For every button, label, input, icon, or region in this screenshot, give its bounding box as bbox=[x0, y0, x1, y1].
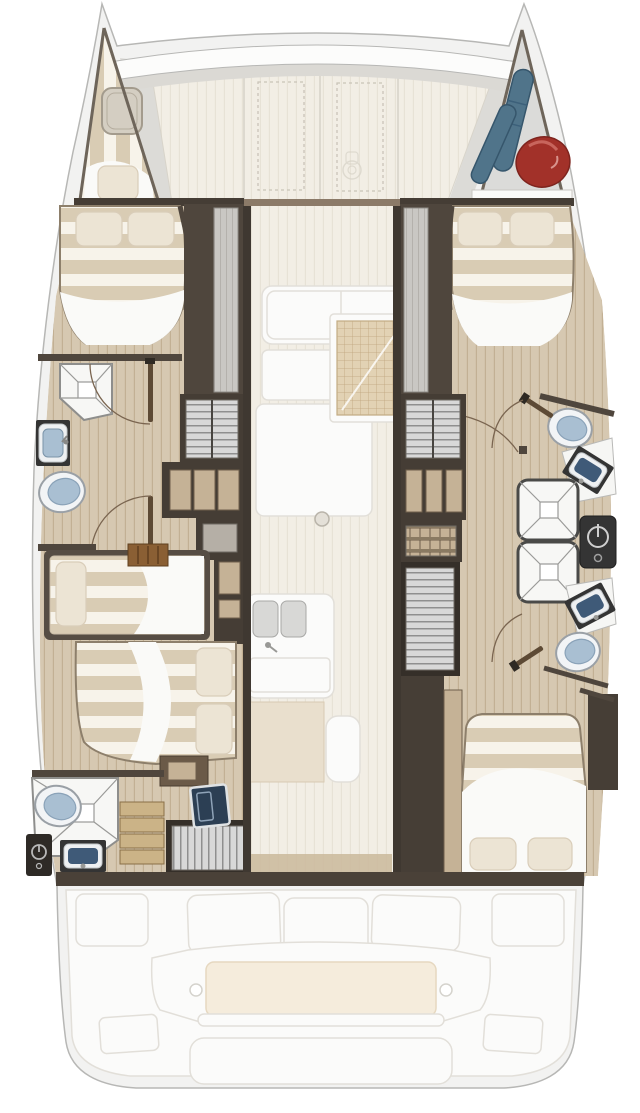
aft-closet bbox=[588, 694, 618, 790]
catamaran-floorplan-image bbox=[0, 0, 640, 1113]
support-post bbox=[315, 512, 329, 526]
pillow bbox=[128, 212, 174, 246]
saloon-bench-ghost bbox=[326, 716, 360, 782]
pillow bbox=[510, 212, 554, 246]
starboard-forward-cabin-bed bbox=[446, 206, 574, 346]
aft-bench bbox=[152, 942, 491, 1026]
foredeck-panels bbox=[150, 64, 498, 203]
cockpit-side-bench bbox=[492, 894, 564, 946]
galley-aft-counter-ghost bbox=[250, 854, 392, 874]
stern-bulkhead bbox=[56, 872, 584, 886]
pillow bbox=[528, 838, 572, 870]
hatch-navy bbox=[190, 784, 230, 828]
aft-bench-cushion bbox=[206, 962, 436, 1016]
pillow bbox=[76, 212, 122, 246]
starboard-cubby-shelves bbox=[400, 462, 466, 520]
swim-platform bbox=[190, 1038, 452, 1084]
pillow bbox=[196, 648, 232, 696]
pillow bbox=[196, 704, 232, 754]
port-cubby-shelves bbox=[162, 462, 244, 518]
water-heater bbox=[580, 516, 616, 568]
floorplan-svg bbox=[0, 0, 640, 1113]
pillow bbox=[458, 212, 502, 246]
starboard-aft-column bbox=[400, 676, 462, 876]
companionway-stairs bbox=[166, 820, 250, 876]
utility-locker bbox=[26, 834, 52, 876]
double-sink-ghost bbox=[246, 594, 334, 698]
wardrobe-sliding-door bbox=[214, 208, 238, 392]
cup-holder bbox=[190, 984, 202, 996]
bathroom-sink bbox=[60, 840, 106, 872]
shower-tray bbox=[518, 480, 578, 540]
starboard-wardrobe bbox=[400, 204, 452, 396]
port-mid-berth bbox=[44, 544, 210, 640]
cup-holder bbox=[440, 984, 452, 996]
cockpit bbox=[66, 890, 576, 1084]
companionway-stairs bbox=[400, 562, 460, 676]
pillow bbox=[56, 562, 86, 626]
wardrobe-sliding-door bbox=[404, 208, 428, 392]
port-wardrobe bbox=[184, 204, 244, 396]
forepeak-pillow bbox=[98, 166, 138, 200]
cockpit-seat bbox=[371, 894, 461, 951]
saloon-table-ghost bbox=[248, 702, 324, 782]
pillow bbox=[470, 838, 516, 870]
port-hanging-locker bbox=[180, 394, 244, 464]
starboard-slat-shelf bbox=[400, 520, 462, 562]
bathroom-sink bbox=[36, 420, 70, 466]
starboard-hanging-locker bbox=[400, 394, 466, 464]
nightstand bbox=[160, 756, 208, 786]
cockpit-side-bench bbox=[76, 894, 148, 946]
saloon-front-wall bbox=[244, 199, 400, 206]
starboard-inner-wall bbox=[393, 206, 401, 874]
port-inner-wall bbox=[243, 206, 251, 874]
berth-ladder bbox=[128, 544, 168, 566]
port-forward-cabin-bed bbox=[60, 206, 190, 345]
